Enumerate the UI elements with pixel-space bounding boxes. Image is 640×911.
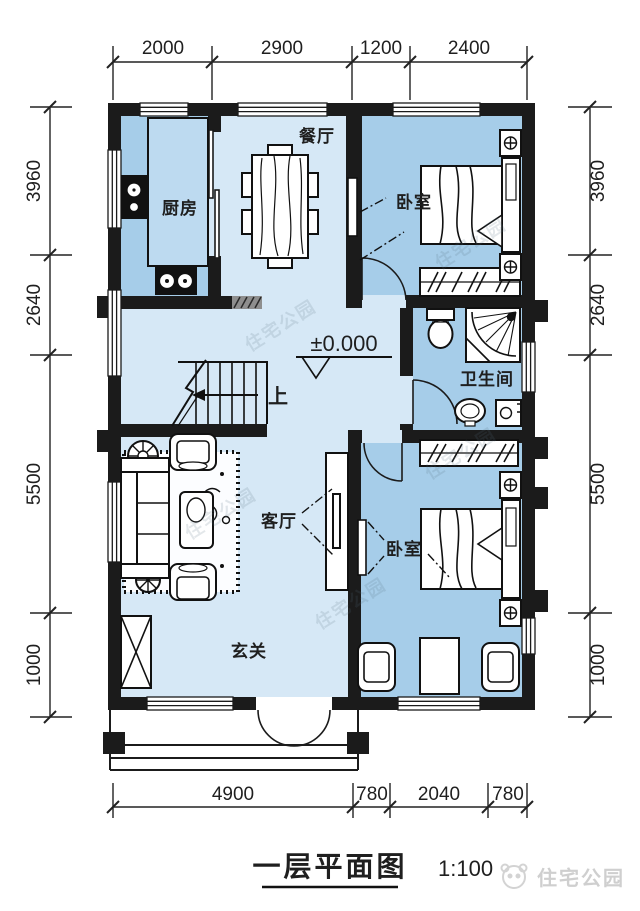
toilet bbox=[427, 309, 454, 348]
dining-table bbox=[252, 155, 308, 258]
window-bedroom-top bbox=[393, 103, 480, 116]
dim-bottom-4: 780 bbox=[492, 784, 524, 805]
window-kitchen-left bbox=[108, 150, 121, 228]
label-foyer: 玄关 bbox=[231, 641, 267, 661]
dim-right-2: 2640 bbox=[588, 284, 609, 326]
window-bedroom-bottom-right bbox=[522, 618, 535, 654]
chair-right bbox=[482, 643, 519, 691]
window-stair-left bbox=[108, 290, 121, 376]
dim-left-3: 5500 bbox=[24, 463, 45, 505]
sofa bbox=[121, 458, 169, 578]
dim-bottom-2: 780 bbox=[356, 784, 388, 805]
dim-bottom-1: 4900 bbox=[212, 784, 254, 805]
label-living: 客厅 bbox=[260, 511, 297, 531]
dim-right-3: 5500 bbox=[588, 463, 609, 505]
chair-left bbox=[358, 643, 395, 691]
bedroom-bottom-tv-panel bbox=[358, 520, 366, 575]
label-stairs-up: 上 bbox=[268, 385, 288, 408]
dim-top-2: 2900 bbox=[261, 38, 303, 59]
window-bathroom-right bbox=[522, 342, 535, 392]
porch-post-left bbox=[103, 732, 125, 754]
window-foyer-bottom bbox=[147, 697, 233, 710]
label-kitchen: 厨房 bbox=[162, 198, 198, 218]
brand-name: 住宅公园 bbox=[537, 866, 625, 890]
tv-cabinet bbox=[326, 453, 348, 590]
window-dining-top bbox=[238, 103, 327, 116]
armchair-bottom bbox=[170, 564, 216, 600]
tv-panel bbox=[333, 494, 340, 548]
floor-plan-drawing: ±0.000 餐厅 厨房 卧室 卫生间 客厅 玄关 卧室 上 2000 29 bbox=[0, 0, 640, 911]
kitchen-sink bbox=[122, 176, 147, 218]
label-bedroom-bottom: 卧室 bbox=[386, 539, 422, 559]
corner-shower bbox=[466, 308, 520, 362]
plan-scale: 1:100 bbox=[438, 856, 493, 881]
kitchen-counter bbox=[148, 118, 208, 266]
dim-bottom-3: 2040 bbox=[418, 784, 460, 805]
foyer-cabinet bbox=[121, 616, 151, 688]
label-bathroom: 卫生间 bbox=[460, 369, 514, 389]
window-living-left bbox=[108, 482, 121, 562]
dim-right-1: 3960 bbox=[588, 160, 609, 202]
label-dining: 餐厅 bbox=[299, 126, 335, 146]
dim-right-4: 1000 bbox=[588, 644, 609, 686]
washing-machine bbox=[496, 400, 521, 426]
dim-left-4: 1000 bbox=[24, 644, 45, 686]
wall-stub-hatch bbox=[232, 296, 262, 309]
plan-title: 一层平面图 bbox=[252, 851, 407, 882]
dim-top-1: 2000 bbox=[142, 38, 184, 59]
dining-table-set bbox=[242, 145, 318, 268]
window-bedroom-bottom bbox=[398, 697, 480, 710]
dim-left-1: 3960 bbox=[24, 160, 45, 202]
dim-top-4: 2400 bbox=[448, 38, 490, 59]
bed-bottom bbox=[421, 509, 502, 589]
dim-top-3: 1200 bbox=[360, 38, 402, 59]
armchair-top bbox=[170, 434, 216, 470]
dining-wall-niche bbox=[348, 178, 357, 236]
kitchen-stove bbox=[156, 268, 196, 294]
floor-plan-page: ±0.000 餐厅 厨房 卧室 卫生间 客厅 玄关 卧室 上 2000 29 bbox=[0, 0, 640, 911]
window-kitchen-top bbox=[140, 103, 188, 116]
dim-left-2: 2640 bbox=[24, 284, 45, 326]
elevation-value: ±0.000 bbox=[310, 331, 377, 356]
brand-watermark: 住宅公园 bbox=[502, 865, 626, 891]
side-table bbox=[420, 638, 459, 694]
label-bedroom-top: 卧室 bbox=[396, 192, 432, 212]
